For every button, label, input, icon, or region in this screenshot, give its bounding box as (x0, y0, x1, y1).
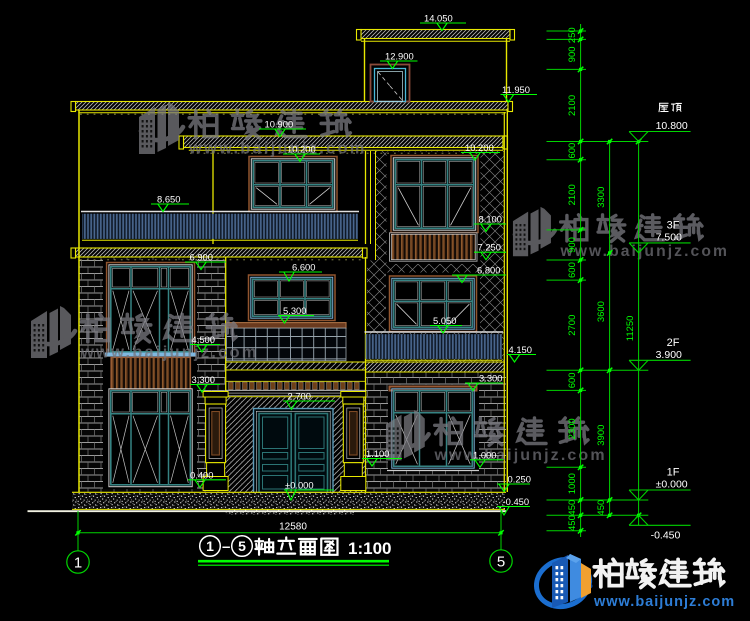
svg-text:2700: 2700 (567, 315, 578, 336)
svg-text:4.500: 4.500 (192, 334, 215, 345)
svg-text:3F: 3F (667, 219, 680, 231)
svg-text:3600: 3600 (596, 301, 607, 322)
svg-text:4.150: 4.150 (509, 344, 532, 355)
svg-text:900: 900 (567, 237, 578, 253)
svg-text:±0.000: ±0.000 (285, 480, 314, 491)
svg-text:–: – (222, 539, 230, 556)
svg-text:1:100: 1:100 (348, 539, 391, 558)
svg-text:3.300: 3.300 (192, 374, 215, 385)
svg-text:2100: 2100 (567, 95, 578, 116)
svg-text:12.900: 12.900 (385, 51, 414, 62)
svg-text:600: 600 (567, 143, 578, 159)
svg-text:1.000: 1.000 (473, 449, 496, 460)
svg-text:1: 1 (74, 555, 82, 572)
svg-text:2.700: 2.700 (288, 391, 311, 402)
svg-text:3.900: 3.900 (656, 349, 682, 361)
svg-text:450: 450 (567, 500, 578, 516)
svg-text:±0.000: ±0.000 (656, 479, 688, 491)
svg-text:10.200: 10.200 (287, 144, 316, 155)
svg-text:2F: 2F (667, 337, 680, 349)
svg-text:-0.450: -0.450 (503, 496, 530, 507)
svg-text:1000: 1000 (567, 473, 578, 494)
svg-text:2300: 2300 (567, 418, 578, 439)
svg-text:www.baijunjz.com: www.baijunjz.com (559, 243, 729, 260)
svg-text:600: 600 (567, 262, 578, 278)
svg-text:0.400: 0.400 (190, 469, 213, 480)
svg-text:5.050: 5.050 (433, 315, 456, 326)
svg-text:1F: 1F (667, 467, 680, 479)
svg-text:www.baijunjz.com: www.baijunjz.com (188, 140, 367, 158)
svg-text:6.900: 6.900 (190, 252, 213, 263)
svg-text:www.baijunjz.com: www.baijunjz.com (593, 594, 735, 610)
svg-text:5: 5 (238, 538, 246, 554)
svg-text:8.650: 8.650 (157, 194, 180, 205)
svg-text:11250: 11250 (625, 316, 636, 342)
svg-text:8.100: 8.100 (479, 214, 502, 225)
svg-text:14.050: 14.050 (424, 13, 453, 24)
svg-text:12580: 12580 (279, 522, 307, 533)
svg-text:1.100: 1.100 (366, 448, 389, 459)
svg-text:250: 250 (567, 27, 578, 43)
svg-text:7.250: 7.250 (478, 242, 501, 253)
svg-text:900: 900 (567, 46, 578, 62)
svg-text:7.500: 7.500 (656, 231, 682, 243)
svg-text:1: 1 (206, 538, 214, 554)
svg-text:3.300: 3.300 (479, 373, 502, 384)
svg-text:6.600: 6.600 (292, 262, 315, 273)
svg-text:5.300: 5.300 (283, 305, 306, 316)
svg-text:-0.450: -0.450 (651, 529, 681, 541)
svg-text:11.950: 11.950 (502, 84, 530, 95)
svg-text:0.250: 0.250 (508, 474, 531, 485)
svg-text:10.900: 10.900 (265, 119, 294, 130)
svg-text:5: 5 (497, 554, 505, 571)
svg-text:450: 450 (567, 515, 578, 531)
svg-text:600: 600 (567, 372, 578, 388)
svg-text:10.800: 10.800 (656, 120, 688, 132)
svg-text:450: 450 (596, 500, 607, 516)
svg-text:3300: 3300 (596, 187, 607, 208)
svg-text:3900: 3900 (596, 425, 607, 446)
svg-text:10.200: 10.200 (465, 142, 494, 153)
svg-text:www.baijunjz.com: www.baijunjz.com (80, 344, 259, 362)
svg-text:6.800: 6.800 (477, 265, 500, 276)
svg-text:2100: 2100 (567, 184, 578, 205)
